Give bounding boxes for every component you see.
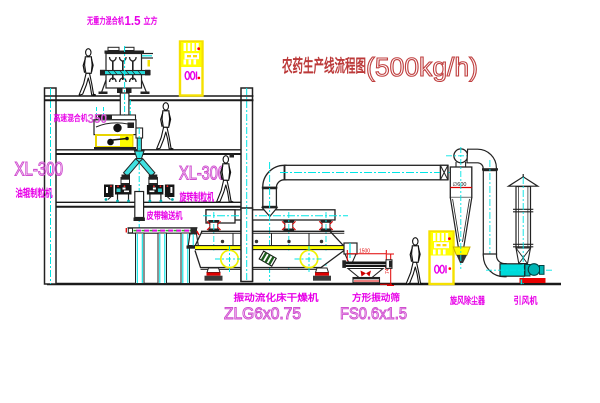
svg-text:旋风除尘器: 旋风除尘器: [449, 295, 485, 307]
svg-text:350: 350: [88, 111, 108, 126]
svg-text:无重力混合机: 无重力混合机: [86, 15, 124, 26]
svg-text:XL-300: XL-300: [179, 164, 226, 185]
svg-text:ZLG6x0.75: ZLG6x0.75: [224, 304, 301, 323]
svg-text:农药生产线流程图: 农药生产线流程图: [281, 56, 366, 76]
svg-text:1500: 1500: [359, 249, 370, 255]
svg-text:FS0.6x1.5: FS0.6x1.5: [340, 304, 407, 323]
svg-text:1.5: 1.5: [125, 13, 141, 28]
svg-text:立方: 立方: [144, 15, 158, 26]
svg-text:振动流化床干燥机: 振动流化床干燥机: [234, 292, 320, 304]
svg-text:油辊制粒机: 油辊制粒机: [16, 187, 53, 200]
svg-text:旋转制粒机: 旋转制粒机: [179, 191, 214, 204]
svg-text:XL-300: XL-300: [15, 160, 64, 181]
svg-text:方形振动筛: 方形振动筛: [352, 292, 400, 304]
svg-text:引风机: 引风机: [514, 295, 538, 307]
svg-text:(500kg/h): (500kg/h): [366, 54, 478, 82]
svg-text:高速混合机: 高速混合机: [54, 113, 88, 123]
svg-text:皮带输送机: 皮带输送机: [146, 210, 183, 222]
